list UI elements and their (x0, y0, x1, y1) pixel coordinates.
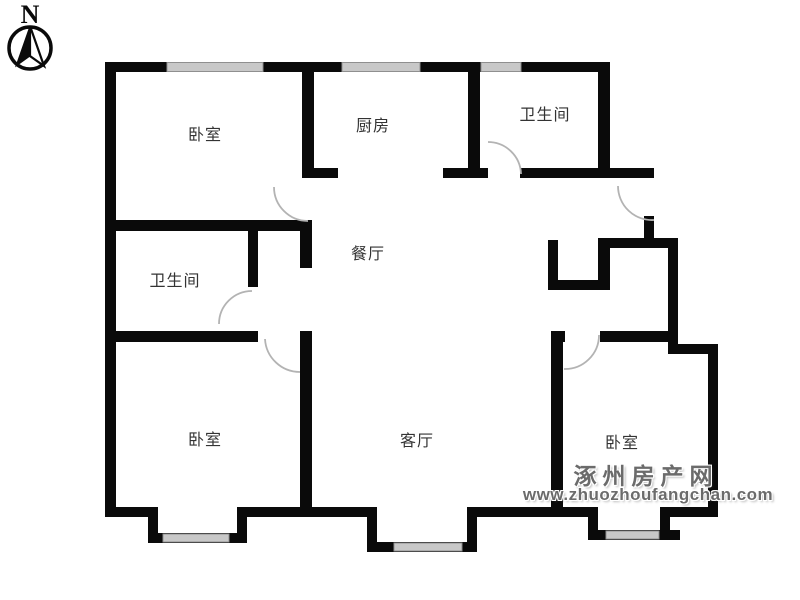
wall-bathroomw-right (248, 220, 258, 287)
compass-n-label: N (21, 0, 40, 29)
room-label-bathroom-west: 卫生间 (149, 267, 200, 291)
wall-kitchen-stub-left (302, 168, 338, 178)
room-label-bedroom-nw: 卧室 (188, 121, 222, 145)
wall-bedroomse-top (600, 331, 678, 342)
wall-living-bedroomsw (300, 331, 312, 517)
floorplan-drawing: N (0, 0, 800, 600)
window-bedroom-nw (167, 63, 263, 72)
wall-mid-horizontal (105, 220, 312, 231)
door-arc-bedroom-nw (274, 187, 308, 221)
wall-bathroom-ne-bottom (443, 168, 488, 178)
room-label-dining-room: 餐厅 (351, 240, 385, 264)
wall-bedroomse-top-nub (551, 331, 565, 342)
wall-dining-stub (300, 220, 312, 268)
watermark-site-url: www.zhuozhoufangchan.com (523, 485, 773, 505)
room-label-bathroom-ne: 卫生间 (519, 101, 570, 125)
room-label-living-room: 客厅 (400, 427, 434, 451)
window-bay-living (394, 543, 462, 551)
door-arc-bedroom-sw (265, 339, 300, 372)
wall-bathroomw-bottom (105, 331, 258, 342)
window-bay-bedroom-sw (163, 534, 229, 542)
wall-bathroom-ne-right (598, 62, 610, 178)
door-arc-bathroom-west (219, 291, 252, 324)
wall-entry (520, 168, 654, 178)
wall-bedroomnw-kitchen (302, 62, 314, 178)
door-arc-bathroom-ne (488, 142, 521, 174)
floorplan-page: N 卧室 厨房 卫生间 餐厅 卫生间 卧室 客厅 卧室 涿州房产网 www.zh… (0, 0, 800, 600)
room-label-bedroom-sw: 卧室 (188, 426, 222, 450)
compass: N (9, 0, 51, 69)
window-bathroom-ne (481, 63, 521, 72)
window-kitchen (342, 63, 420, 72)
room-label-bedroom-se: 卧室 (605, 429, 639, 453)
room-label-kitchen: 厨房 (356, 112, 390, 136)
door-arc-bedroom-se (564, 335, 599, 369)
door-arc-entry (618, 186, 654, 220)
wall-left (105, 62, 116, 517)
window-bay-bedroom-se (606, 531, 659, 539)
wall-hall-top (598, 238, 678, 248)
wall-niche-right (598, 248, 610, 290)
wall-bottom (467, 507, 565, 517)
wall-kitchen-bathroom (468, 62, 480, 178)
